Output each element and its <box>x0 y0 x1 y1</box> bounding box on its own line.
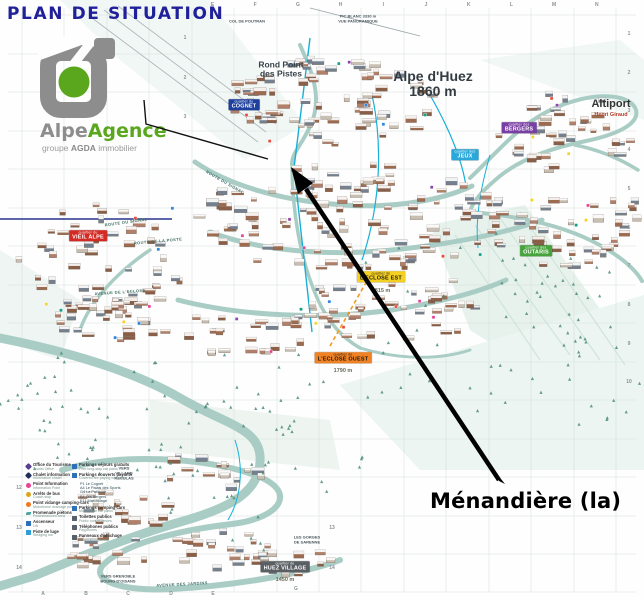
quarter-name: HUEZ VILLAGE <box>264 566 307 572</box>
grid-row-right-1: 1 <box>628 31 631 37</box>
grid-col-top-L: L <box>510 2 513 8</box>
grid-row-right-4: 4 <box>628 147 631 153</box>
quarter-name: VIEIL ALPE <box>72 235 104 241</box>
rond-point-des-pistes-label: Rond Pointdes Pistes <box>258 61 303 80</box>
grid-row-right-10: 10 <box>626 379 632 385</box>
grid-col-bottom-B: B <box>84 591 88 597</box>
legend-item: Toilettes publicsPublic conveniences <box>72 515 112 524</box>
legend-icon <box>72 535 77 540</box>
legend-item: Panneaux d'affichageInformation panels <box>72 534 122 543</box>
legend-icon <box>26 483 31 488</box>
legend-parking-list: P1 Le CognetA4 Le Palais des SportsG4 La… <box>80 482 121 504</box>
grid-row-right-9: 9 <box>628 341 631 347</box>
quarter-badge-cognet: quartier duCOGNET <box>229 99 260 110</box>
grid-col-top-H: H <box>339 2 343 8</box>
legend-item: Office du TourismeTourist Office <box>26 463 71 472</box>
grid-col-top-M: M <box>552 2 556 8</box>
quarter-name: JEUX <box>455 154 476 160</box>
grid-col-bottom-A: A <box>41 591 45 597</box>
grid-col-bottom-C: C <box>126 591 130 597</box>
legend-label-en: Free long-stay car parks <box>79 468 129 472</box>
grid-row-right-6: 6 <box>628 225 631 231</box>
legend-label-en: Sledging run <box>33 534 59 538</box>
legend-item: Point InformationInformation Point <box>26 482 68 491</box>
quarter-badge-bergers: quartier desBERGERS <box>502 122 537 133</box>
legend-text: Promenade piétonsPedestrianized area <box>33 511 72 520</box>
legend-icon <box>72 473 77 478</box>
legend-icon <box>25 472 32 479</box>
legend-text: Parkings séjours gratuitsFree long-stay … <box>79 463 129 472</box>
quarter-name: BERGERS <box>505 127 534 133</box>
quarter-altitude: 1790 m <box>334 368 353 374</box>
grid-col-top-F: F <box>254 2 257 8</box>
grid-row-left-14: 14 <box>16 565 22 571</box>
legend-text: Parkings camping-carsMotorhome car parks <box>79 506 125 515</box>
map-small-label-9: BOURG D'OISANS <box>100 580 135 585</box>
alpe-dhuez-summit-label: Alpe d'Huez1860 m <box>393 69 473 99</box>
quarter-name: COGNET <box>232 104 257 110</box>
legend-item: AscenseurLift <box>26 520 54 529</box>
quarter-altitude: 1815 m <box>372 288 391 294</box>
map-small-label-7: DE SARENNE <box>294 541 320 546</box>
quarter-name: OUTARIS <box>523 250 549 256</box>
legend-item: Arrêts de busCoach stop <box>26 492 60 501</box>
legend-text: AscenseurLift <box>33 520 54 529</box>
map-small-label-0: COL DE POUTRAN <box>229 20 265 25</box>
legend-text: Panneaux d'affichageInformation panels <box>79 534 122 543</box>
legend-label-en: Public conveniences <box>79 520 112 524</box>
alpe-agence-logo: AlpeAgence groupe AGDA immobilier <box>38 36 148 156</box>
legend-item: Chalet informationInformation chalet <box>26 473 70 482</box>
quarter-name: L'ECLOSE EST <box>360 276 402 282</box>
legend-text: Téléphones publicsPayphones <box>79 525 118 534</box>
legend-icon <box>26 492 31 497</box>
grid-row-inner-1: 1 <box>184 35 187 41</box>
quarter-badge-vieil-alpe: quartier duVIEIL ALPE <box>69 230 107 241</box>
grid-row-right-2: 2 <box>628 70 631 76</box>
legend-icon <box>26 521 31 526</box>
legend-item: Parkings camping-carsMotorhome car parks <box>72 506 125 515</box>
map-small-label-2: VUE PANORAMIQUE <box>338 20 377 25</box>
legend-label-en: Information Point <box>33 487 68 491</box>
legend-icon <box>72 516 77 521</box>
legend-label-en: Covered fee-paying car parks <box>79 477 132 481</box>
grid-col-bottom-G: G <box>294 586 298 592</box>
legend-label-en: Information panels <box>79 539 122 543</box>
legend-item: Parkings couverts payantsCovered fee-pay… <box>72 473 132 482</box>
legend-text: Arrêts de busCoach stop <box>33 492 60 501</box>
menandiere-annotation-label: Ménandière (la) <box>430 489 621 513</box>
street-name-4: AVENUE DES JARDINS <box>156 580 208 588</box>
grid-row-inner-14: 14 <box>329 565 335 571</box>
legend-item: Promenade piétonsPedestrianized area <box>26 511 72 520</box>
legend-label-en: Lift <box>33 525 54 529</box>
page-title: PLAN DE SITUATION <box>7 4 224 24</box>
legend-icon <box>26 502 31 507</box>
legend-text: Toilettes publicsPublic conveniences <box>79 515 112 524</box>
grid-col-bottom-D: D <box>169 591 173 597</box>
quarter-badge-outaris: quartier desOUTARIS <box>520 245 552 256</box>
brand-subtitle: groupe AGDA immobilier <box>42 143 137 153</box>
altiport-label: Altiport <box>591 98 630 110</box>
legend-text: Office du TourismeTourist Office <box>33 463 71 472</box>
grid-row-right-5: 5 <box>628 186 631 192</box>
brand-name: AlpeAgence <box>40 120 167 142</box>
quarter-altitude: 1450 m <box>276 577 295 583</box>
legend-text: Chalet informationInformation chalet <box>33 473 70 482</box>
grid-col-bottom-E: E <box>211 591 214 597</box>
grid-row-inner-2: 2 <box>184 75 187 81</box>
legend-icon <box>72 525 77 530</box>
street-name-2: ROUTE DU SIGNAL <box>205 169 245 195</box>
grid-row-right-8: 8 <box>628 302 631 308</box>
quarter-badge-huez-village: quartier deHUEZ VILLAGE <box>261 561 310 572</box>
grid-row-left-13: 13 <box>16 525 22 531</box>
legend-icon <box>72 464 77 469</box>
legend-icon <box>25 462 32 469</box>
legend-icon <box>26 530 31 535</box>
grid-col-top-I: I <box>383 2 384 8</box>
legend-icon <box>26 512 31 515</box>
legend-item: Piste de lugeSledging run <box>26 530 59 539</box>
grid-col-top-J: J <box>425 2 428 8</box>
quarter-badge-l-eclose-est: quartier deL'ECLOSE EST <box>357 271 405 282</box>
grid-row-inner-13: 13 <box>329 525 335 531</box>
legend-label-en: Tourist Office <box>33 468 71 472</box>
grid-col-top-N: N <box>595 2 599 8</box>
quarter-name: L'ECLOSE OUEST <box>318 357 369 363</box>
plan-de-situation-map: Rond Pointdes Pistes Alpe d'Huez1860 m A… <box>0 0 644 600</box>
grid-row-right-7: 7 <box>628 263 631 269</box>
legend-item: Parkings séjours gratuitsFree long-stay … <box>72 463 129 472</box>
legend-item: Téléphones publicsPayphones <box>72 525 118 534</box>
grid-col-top-K: K <box>467 2 471 8</box>
street-name-1: ROUTE DE LA POSTE <box>134 236 183 245</box>
altiport-subtitle: Henri Giraud <box>594 112 627 118</box>
quarter-badge-jeux: quartier desJEUX <box>452 149 479 160</box>
street-name-0: ROUTE DU SIGNAL <box>104 217 147 228</box>
grid-col-top-G: G <box>296 2 300 8</box>
grid-row-inner-3: 3 <box>184 114 187 120</box>
quarter-badge-l-eclose-ouest: quartier deL'ECLOSE OUEST <box>315 352 372 363</box>
legend-text: Parkings couverts payantsCovered fee-pay… <box>79 473 132 482</box>
alpe-agence-logo-icon <box>38 36 122 120</box>
grid-row-right-3: 3 <box>628 108 631 114</box>
legend-text: Point InformationInformation Point <box>33 482 68 491</box>
legend-text: Piste de lugeSledging run <box>33 530 59 539</box>
legend-icon <box>72 506 77 511</box>
street-name-3: AVENUE DE L'ECLOSE <box>94 288 145 297</box>
grid-row-left-12: 12 <box>16 485 22 491</box>
